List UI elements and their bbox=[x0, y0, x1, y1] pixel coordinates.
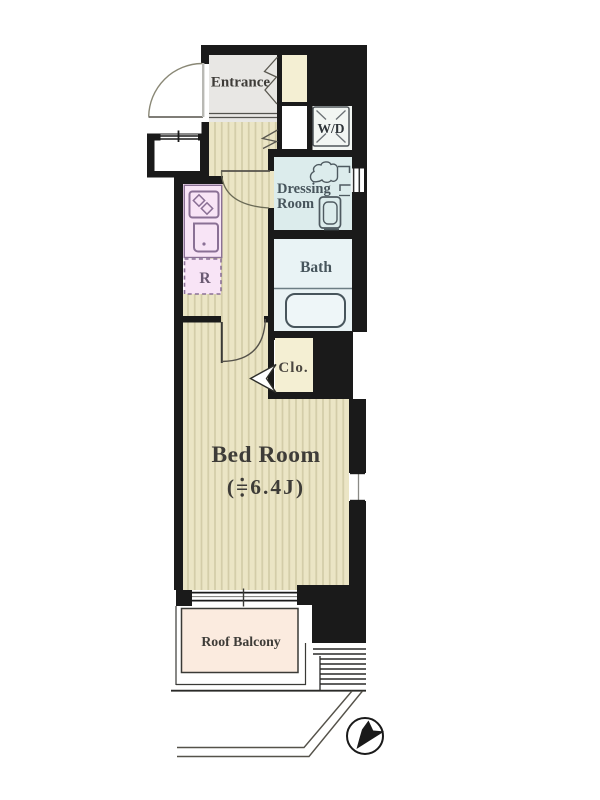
svg-text:R: R bbox=[199, 270, 211, 287]
svg-text:Roof Balcony: Roof Balcony bbox=[201, 634, 280, 649]
svg-text:Bath: Bath bbox=[300, 259, 332, 276]
svg-text:Entrance: Entrance bbox=[211, 75, 271, 91]
svg-text:Dressing: Dressing bbox=[277, 181, 331, 197]
svg-text:W/D: W/D bbox=[318, 121, 345, 136]
svg-text:Bed Room: Bed Room bbox=[211, 442, 320, 468]
svg-text:Clo.: Clo. bbox=[278, 360, 308, 376]
svg-text:(=6.4J): (=6.4J) bbox=[227, 475, 305, 499]
svg-text:Room: Room bbox=[277, 196, 314, 212]
